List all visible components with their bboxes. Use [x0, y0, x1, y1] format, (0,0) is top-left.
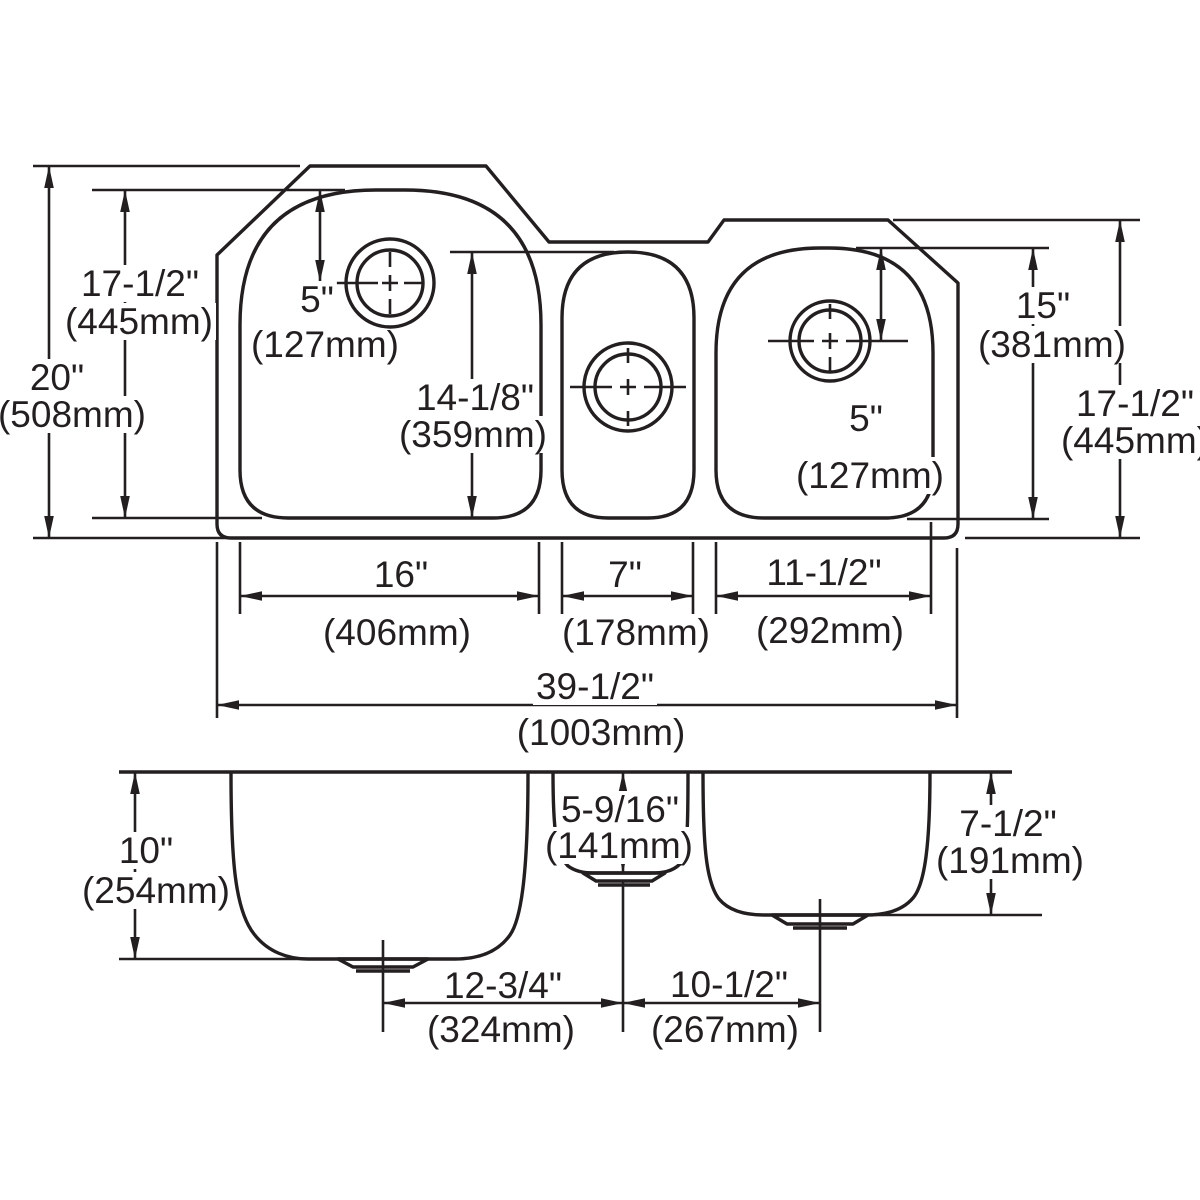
left-bowl-height-label-in: 17-1/2" [81, 263, 199, 304]
right-faucet-offset-label-in: 5" [849, 398, 883, 439]
right-drain-offset-label-mm: (267mm) [651, 1009, 799, 1050]
middle-bowl-width-label-in: 7" [608, 554, 642, 595]
left-bowl-depth-label-in: 10" [119, 830, 173, 871]
right-bowl-width-label-mm: (292mm) [756, 610, 904, 651]
middle-drain-crosshair [570, 348, 686, 426]
right-faucet-offset-label-mm: (127mm) [796, 455, 944, 496]
left-faucet-offset-label-in: 5" [300, 279, 334, 320]
right-bowl-depth-label-in: 7-1/2" [959, 803, 1056, 844]
overall-width-label-in: 39-1/2" [536, 666, 654, 707]
side-view: 10" (254mm) 5-9/16" (141mm) 7-1/2" (191m… [79, 772, 1087, 1050]
overall-height-label-in: 20" [30, 357, 84, 398]
middle-bowl-depth-label-mm: (141mm) [545, 825, 693, 866]
top-view: 20" (508mm) 17-1/2" (445mm) 5" (127mm) 1… [0, 166, 1200, 753]
overall-height-label-mm: (508mm) [0, 394, 146, 435]
middle-bowl-depth-label-in: 5-9/16" [561, 789, 679, 830]
left-drain-offset-label-in: 12-3/4" [444, 965, 562, 1006]
right-bowl-length-label-in: 15" [1016, 285, 1070, 326]
left-bowl-depth-label-mm: (254mm) [82, 870, 230, 911]
overall-width-label-mm: (1003mm) [517, 712, 686, 753]
right-rim-height-label-mm: (445mm) [1061, 420, 1200, 461]
sink-dimension-diagram: 20" (508mm) 17-1/2" (445mm) 5" (127mm) 1… [0, 0, 1200, 1200]
right-bowl-width-label-in: 11-1/2" [766, 552, 881, 593]
middle-drain [583, 873, 665, 881]
middle-bowl-length-label-in: 14-1/8" [416, 377, 534, 418]
left-bowl-height-label-mm: (445mm) [65, 301, 213, 342]
right-drain-offset-label-in: 10-1/2" [670, 964, 788, 1005]
left-faucet-offset-label-mm: (127mm) [251, 324, 399, 365]
middle-bowl-width-label-mm: (178mm) [562, 612, 710, 653]
right-bowl-length-label-mm: (381mm) [978, 324, 1126, 365]
left-bowl-section-profile [231, 772, 528, 959]
middle-bowl-length-label-mm: (359mm) [399, 414, 547, 455]
right-rim-height-label-in: 17-1/2" [1076, 383, 1194, 424]
right-bowl-section-profile [703, 772, 930, 915]
left-bowl-width-label-in: 16" [374, 554, 428, 595]
left-bowl-width-label-mm: (406mm) [323, 612, 471, 653]
left-drain-offset-label-mm: (324mm) [427, 1009, 575, 1050]
right-bowl-depth-label-mm: (191mm) [936, 840, 1084, 881]
top-view-dimension-labels: 20" (508mm) 17-1/2" (445mm) 5" (127mm) 1… [0, 263, 1200, 753]
